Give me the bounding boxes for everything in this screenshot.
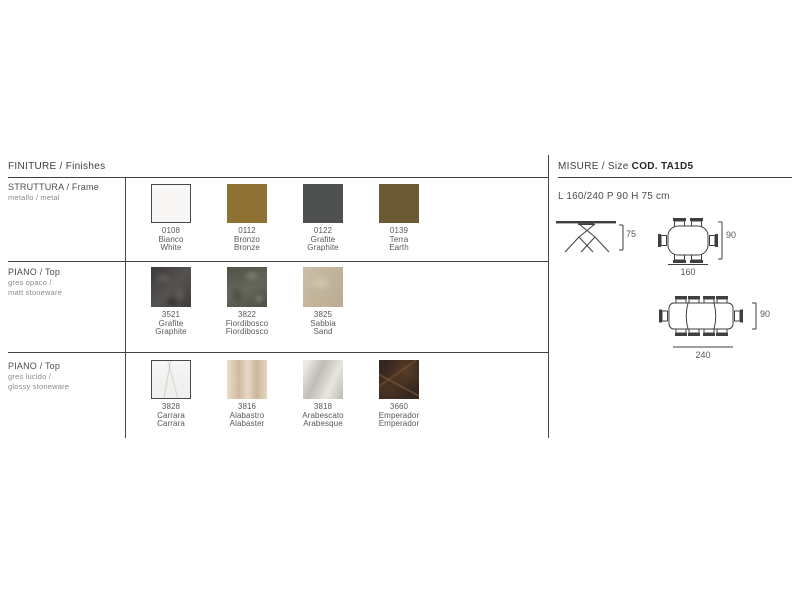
swatch-label: 3825 Sabbia Sand — [288, 311, 358, 337]
chair — [690, 218, 703, 227]
swatch-label: 3816 Alabastro Alabaster — [212, 403, 282, 429]
swatch-label: 3660 Emperador Emperador — [364, 403, 434, 429]
section-divider — [548, 155, 549, 438]
height-dimension-label: 75 — [626, 229, 636, 239]
size-header-rule — [558, 177, 792, 178]
product-code: COD. TA1D5 — [632, 161, 694, 172]
swatch-bronzo — [227, 184, 267, 223]
depth-dimension-label: 90 — [726, 230, 736, 240]
width-open-label: 240 — [689, 350, 717, 360]
row2-sublabel-2: matt stoneware — [8, 288, 62, 298]
swatch-arabescato — [303, 360, 343, 399]
swatch-label: 0112 Bronzo Bronze — [212, 227, 282, 253]
row1-label: STRUTTURA / Frame — [8, 182, 99, 192]
finishes-section-title: FINITURE / Finishes — [8, 161, 105, 172]
swatch-label: 3818 Arabescato Arabesque — [288, 403, 358, 429]
swatch-label: 0122 Grafite Graphite — [288, 227, 358, 253]
swatch-terra — [379, 184, 419, 223]
leg-truss — [565, 224, 609, 252]
chair — [735, 310, 744, 323]
swatch-sabbia — [303, 267, 343, 307]
swatch-emperador — [379, 360, 419, 399]
row3-label: PIANO / Top — [8, 361, 60, 371]
row-divider-2 — [8, 352, 548, 353]
chair — [659, 310, 668, 323]
tabletop-side — [556, 221, 616, 223]
chair — [710, 234, 719, 247]
swatch-label: 3828 Carrara Carrara — [136, 403, 206, 429]
width-closed-label: 160 — [674, 267, 702, 277]
row-divider-1 — [8, 261, 548, 262]
row3-sublabel-2: glossy stoneware — [8, 382, 69, 392]
swatch-fiordibosco — [227, 267, 267, 307]
row3-sublabel-1: gres lucido / — [8, 372, 51, 382]
tabletop-closed — [668, 226, 708, 255]
row2-label: PIANO / Top — [8, 267, 60, 277]
chair — [673, 255, 686, 264]
swatch-label: 0139 Terra Earth — [364, 227, 434, 253]
chair — [658, 234, 667, 247]
swatch-alabastro — [227, 360, 267, 399]
spec-sheet-page: FINITURE / Finishes STRUTTURA / Frame me… — [0, 0, 800, 600]
depth-dimension-bracket — [718, 222, 722, 259]
row2-sublabel-1: gres opaco / — [8, 278, 52, 288]
swatch-label: 0108 Bianco White — [136, 227, 206, 253]
finishes-header-rule — [8, 177, 548, 178]
chair — [673, 218, 686, 227]
depth-dimension-label-2: 90 — [760, 309, 770, 319]
row1-sublabel: metallo / metal — [8, 193, 60, 203]
tabletop-extended — [669, 303, 733, 329]
depth-dimension-bracket — [752, 303, 756, 329]
height-dimension-bracket — [619, 225, 623, 250]
size-section-title: MISURE / Size COD. TA1D5 — [558, 161, 693, 172]
swatch-bianco — [151, 184, 191, 223]
dimensions-text: L 160/240 P 90 H 75 cm — [558, 191, 670, 202]
swatch-grafite-frame — [303, 184, 343, 223]
swatch-label: 3521 Grafite Graphite — [136, 311, 206, 337]
label-column-divider — [125, 178, 126, 438]
swatch-grafite-top — [151, 267, 191, 307]
swatch-carrara — [151, 360, 191, 399]
swatch-label: 3822 Fiordibosco Fiordibosco — [212, 311, 282, 337]
chair — [690, 255, 703, 264]
